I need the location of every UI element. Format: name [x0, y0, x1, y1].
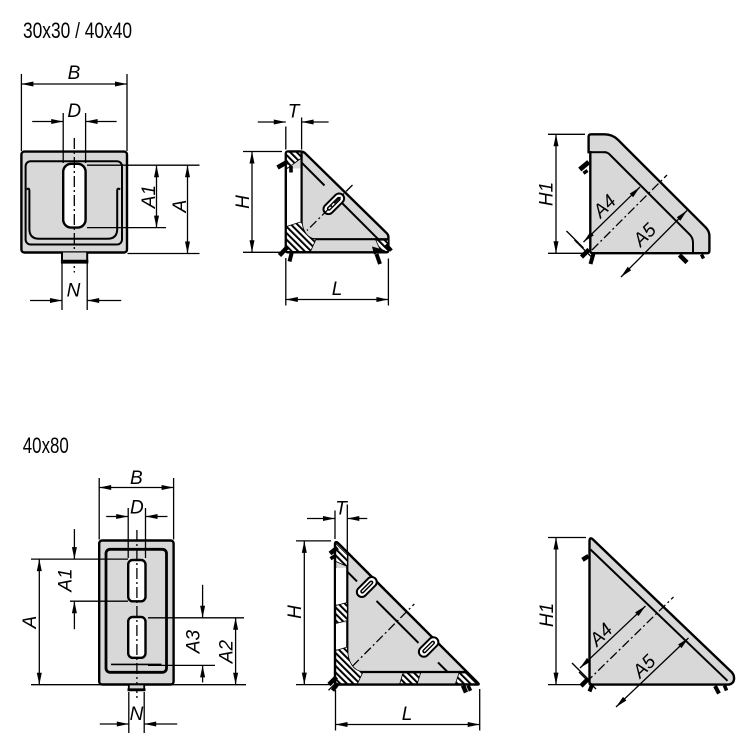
svg-text:A3: A3 [184, 629, 205, 654]
svg-text:A1: A1 [139, 185, 160, 209]
svg-text:D: D [67, 101, 81, 122]
svg-text:B: B [130, 468, 143, 489]
svg-text:N: N [67, 281, 81, 302]
svg-text:B: B [68, 63, 81, 84]
svg-text:L: L [402, 704, 413, 725]
svg-text:T: T [335, 499, 348, 520]
svg-text:A2: A2 [217, 639, 238, 664]
svg-text:H: H [233, 195, 254, 209]
svg-text:L: L [332, 279, 343, 300]
svg-text:40x80: 40x80 [23, 433, 69, 458]
svg-text:A: A [20, 616, 41, 630]
svg-text:H1: H1 [537, 182, 558, 206]
svg-text:T: T [288, 102, 301, 123]
svg-text:30x30 / 40x40: 30x30 / 40x40 [23, 18, 132, 43]
svg-text:A1: A1 [56, 568, 77, 592]
svg-text:H: H [285, 605, 306, 619]
svg-text:D: D [130, 498, 144, 519]
svg-text:A: A [170, 200, 191, 214]
svg-text:H1: H1 [537, 603, 558, 627]
svg-text:N: N [130, 704, 144, 725]
